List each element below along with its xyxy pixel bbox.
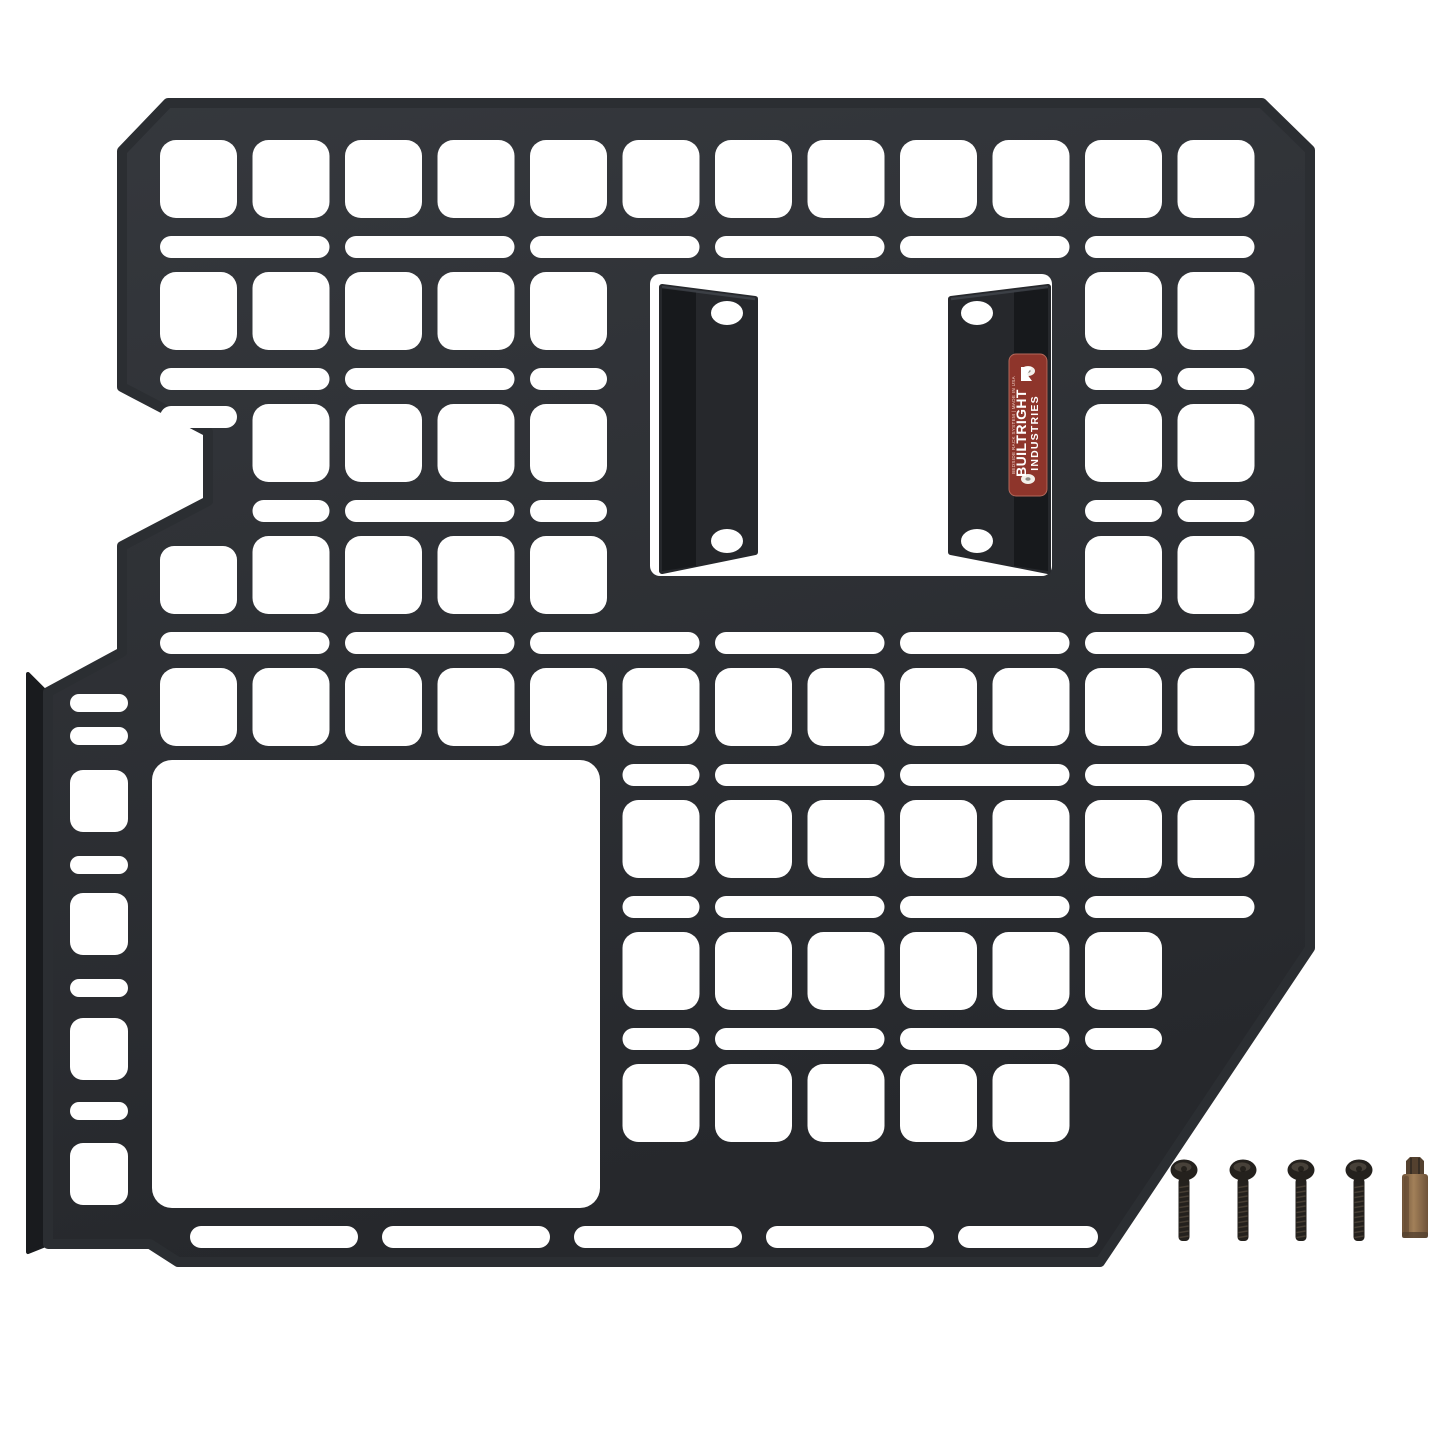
molle-square <box>438 668 515 746</box>
molle-square <box>530 140 607 218</box>
molle-slot <box>70 856 128 874</box>
molle-square <box>623 800 700 878</box>
molle-slot <box>623 896 700 918</box>
molle-square <box>1085 932 1162 1010</box>
molle-square <box>70 1018 128 1080</box>
screw-torx-recess <box>1356 1166 1362 1172</box>
molle-slot <box>574 1226 742 1248</box>
molle-square <box>808 800 885 878</box>
molle-square <box>438 404 515 482</box>
molle-square <box>808 932 885 1010</box>
molle-square <box>345 272 422 350</box>
molle-slot <box>382 1226 550 1248</box>
molle-square <box>253 668 330 746</box>
molle-slot <box>160 236 330 258</box>
molle-slot <box>1085 632 1255 654</box>
molle-square <box>715 1064 792 1142</box>
molle-square <box>715 668 792 746</box>
molle-square <box>900 668 977 746</box>
molle-slot <box>715 896 885 918</box>
molle-panel-product-image: Black laser-cut MOLLE bedside rack panel… <box>0 0 1445 1444</box>
bracket-web <box>662 287 696 571</box>
molle-slot <box>1085 236 1255 258</box>
bracket-bolt-hole <box>711 301 743 325</box>
molle-slot <box>1085 764 1255 786</box>
molle-slot <box>900 896 1070 918</box>
molle-slot <box>70 979 128 997</box>
molle-slot <box>345 236 515 258</box>
molle-slot <box>900 1028 1070 1050</box>
molle-slot <box>253 500 330 522</box>
molle-slot <box>530 236 700 258</box>
molle-square <box>808 1064 885 1142</box>
molle-slot <box>623 1028 700 1050</box>
molle-square <box>160 272 237 350</box>
molle-square <box>345 140 422 218</box>
molle-square <box>993 1064 1070 1142</box>
molle-square <box>438 272 515 350</box>
molle-square <box>438 536 515 614</box>
bracket-bolt-hole <box>711 529 743 553</box>
molle-square <box>1085 140 1162 218</box>
molle-square <box>1178 536 1255 614</box>
molle-slot <box>900 764 1070 786</box>
molle-square <box>808 668 885 746</box>
screw-torx-recess <box>1181 1166 1187 1172</box>
molle-square <box>623 1064 700 1142</box>
molle-square <box>253 404 330 482</box>
molle-slot <box>530 632 700 654</box>
molle-slot <box>160 406 237 428</box>
molle-slot <box>1178 500 1255 522</box>
molle-slot <box>160 632 330 654</box>
molle-square <box>160 546 237 614</box>
molle-square <box>530 404 607 482</box>
molle-square <box>623 668 700 746</box>
molle-square <box>70 1143 128 1205</box>
molle-slot <box>900 236 1070 258</box>
molle-slot <box>715 632 885 654</box>
molle-square <box>715 932 792 1010</box>
molle-square <box>253 272 330 350</box>
molle-square <box>1178 140 1255 218</box>
molle-slot <box>1178 368 1255 390</box>
molle-square <box>1178 404 1255 482</box>
molle-square <box>438 140 515 218</box>
molle-slot <box>70 694 128 712</box>
molle-square <box>1085 404 1162 482</box>
molle-square <box>530 668 607 746</box>
molle-square <box>253 140 330 218</box>
molle-square <box>900 1064 977 1142</box>
bit-bottom-edge <box>1402 1232 1428 1238</box>
molle-square <box>345 404 422 482</box>
molle-slot <box>1085 368 1162 390</box>
molle-slot <box>900 632 1070 654</box>
bracket-bolt-hole <box>961 529 993 553</box>
molle-square <box>993 800 1070 878</box>
molle-square <box>1178 272 1255 350</box>
molle-square <box>70 770 128 832</box>
molle-square <box>900 800 977 878</box>
large-accessory-window <box>152 760 600 1208</box>
bracket-bolt-hole <box>961 301 993 325</box>
molle-square <box>623 140 700 218</box>
badge-small-print: BEDSIDE RACK SYSTEM | MADE IN USA <box>1011 375 1016 474</box>
molle-square <box>1178 800 1255 878</box>
molle-slot <box>530 500 607 522</box>
molle-slot <box>715 764 885 786</box>
molle-slot <box>70 727 128 745</box>
molle-square <box>70 893 128 955</box>
molle-slot <box>623 764 700 786</box>
molle-slot <box>766 1226 934 1248</box>
bit-hex-facet-shade <box>1404 1176 1409 1236</box>
molle-slot <box>190 1226 358 1248</box>
molle-slot <box>70 1102 128 1120</box>
molle-square <box>160 668 237 746</box>
bit-torx-tip <box>1406 1157 1424 1174</box>
molle-square <box>900 932 977 1010</box>
molle-slot <box>715 236 885 258</box>
molle-square <box>345 536 422 614</box>
molle-square <box>530 272 607 350</box>
molle-square <box>1085 272 1162 350</box>
molle-square <box>900 140 977 218</box>
molle-square <box>1085 536 1162 614</box>
molle-slot <box>160 368 330 390</box>
molle-square <box>1178 668 1255 746</box>
screw-torx-recess <box>1298 1166 1304 1172</box>
molle-slot <box>345 500 515 522</box>
badge-brand-line2: INDUSTRIES <box>1029 395 1041 471</box>
molle-square <box>253 536 330 614</box>
molle-square <box>715 140 792 218</box>
molle-square <box>993 140 1070 218</box>
molle-square <box>993 668 1070 746</box>
molle-square <box>993 932 1070 1010</box>
product-image-canvas: Black laser-cut MOLLE bedside rack panel… <box>0 0 1445 1444</box>
molle-square <box>1085 800 1162 878</box>
molle-slot <box>345 632 515 654</box>
screw-torx-recess <box>1240 1166 1246 1172</box>
molle-square <box>623 932 700 1010</box>
molle-slot <box>1085 896 1255 918</box>
mounting-bracket-left <box>662 287 755 571</box>
molle-slot <box>1085 1028 1162 1050</box>
molle-slot <box>530 368 607 390</box>
molle-slot <box>1085 500 1162 522</box>
molle-square <box>808 140 885 218</box>
molle-square <box>1085 668 1162 746</box>
molle-square <box>345 668 422 746</box>
molle-slot <box>958 1226 1098 1248</box>
molle-slot <box>715 1028 885 1050</box>
brand-badge: BUILTRIGHTINDUSTRIESBEDSIDE RACK SYSTEM … <box>1009 354 1047 496</box>
molle-square <box>715 800 792 878</box>
molle-slot <box>345 368 515 390</box>
molle-square <box>530 536 607 614</box>
molle-square <box>160 140 237 218</box>
